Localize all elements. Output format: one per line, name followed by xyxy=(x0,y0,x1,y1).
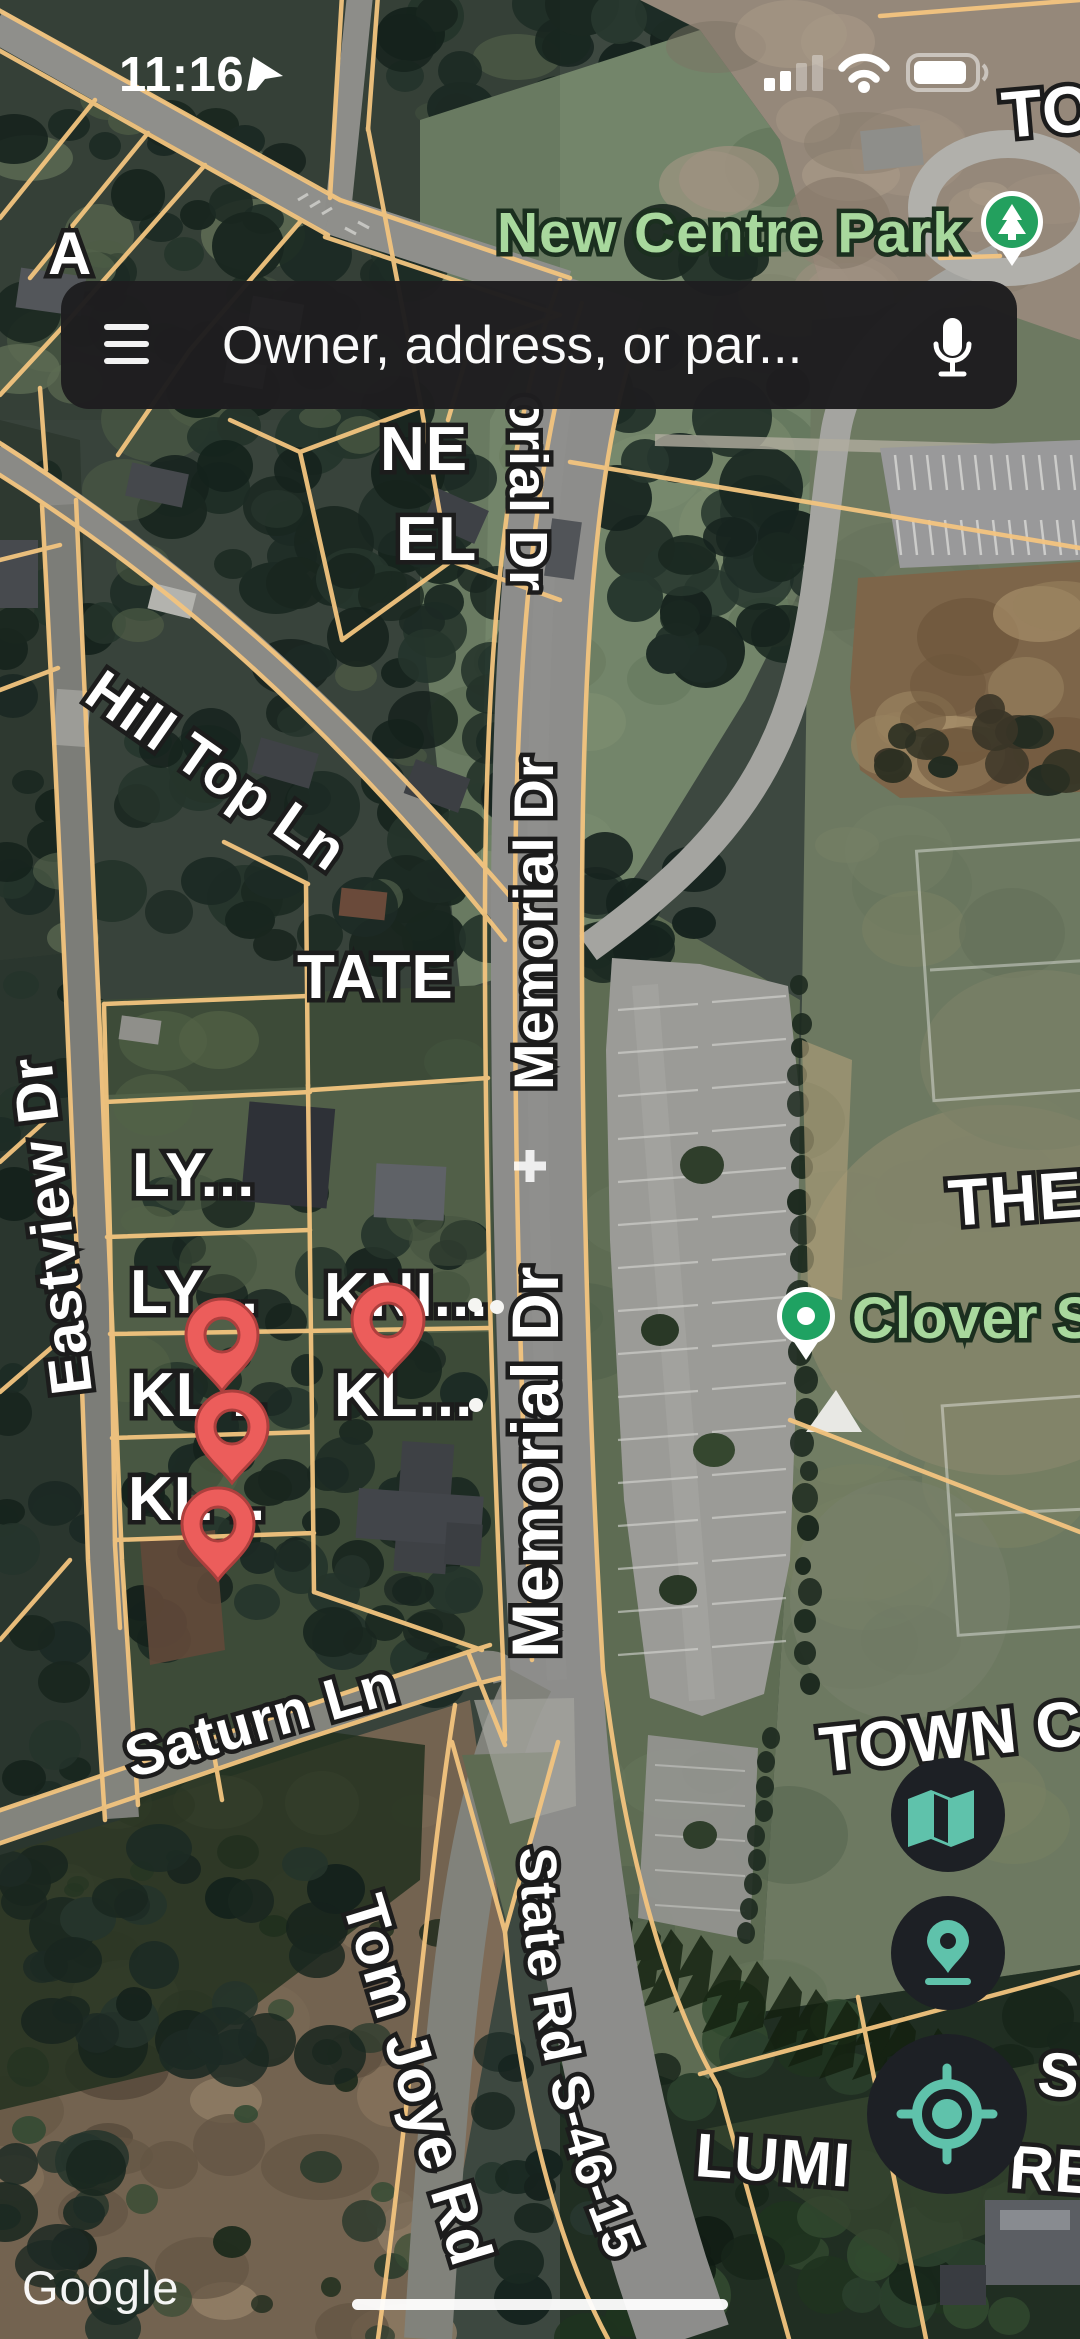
svg-text:Clover S: Clover S xyxy=(852,1286,1080,1351)
svg-text:11:16: 11:16 xyxy=(119,48,244,102)
svg-text:THE: THE xyxy=(946,1157,1080,1240)
svg-text:Owner, address, or par...: Owner, address, or par... xyxy=(222,316,802,375)
svg-text:SU: SU xyxy=(1035,2039,1080,2117)
svg-text:KL...: KL... xyxy=(334,1361,473,1430)
svg-text:Memorial Dr: Memorial Dr xyxy=(502,755,565,1090)
svg-text:A: A xyxy=(48,220,92,287)
svg-text:EL: EL xyxy=(396,505,477,574)
svg-text:TO: TO xyxy=(999,70,1080,152)
svg-text:TATE: TATE xyxy=(297,943,454,1012)
svg-text:LY...: LY... xyxy=(132,1141,255,1210)
svg-text:New Centre Park: New Centre Park xyxy=(497,201,965,265)
svg-text:Google: Google xyxy=(22,2261,180,2314)
svg-text:Memorial Dr: Memorial Dr xyxy=(498,1266,572,1658)
svg-text:orial Dr: orial Dr xyxy=(498,395,558,592)
svg-text:NE: NE xyxy=(380,415,468,484)
svg-text:LUMI: LUMI xyxy=(693,2121,853,2201)
